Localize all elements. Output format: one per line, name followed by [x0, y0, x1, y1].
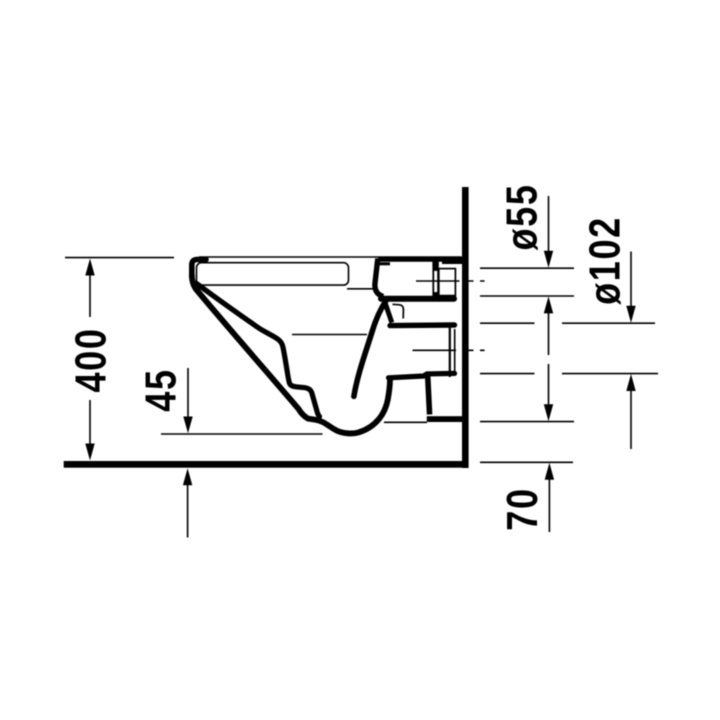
svg-text:45: 45	[136, 368, 185, 411]
svg-text:ø55: ø55	[497, 183, 546, 250]
svg-text:ø102: ø102	[580, 216, 629, 305]
svg-text:400: 400	[66, 327, 115, 392]
svg-text:70: 70	[498, 487, 547, 530]
